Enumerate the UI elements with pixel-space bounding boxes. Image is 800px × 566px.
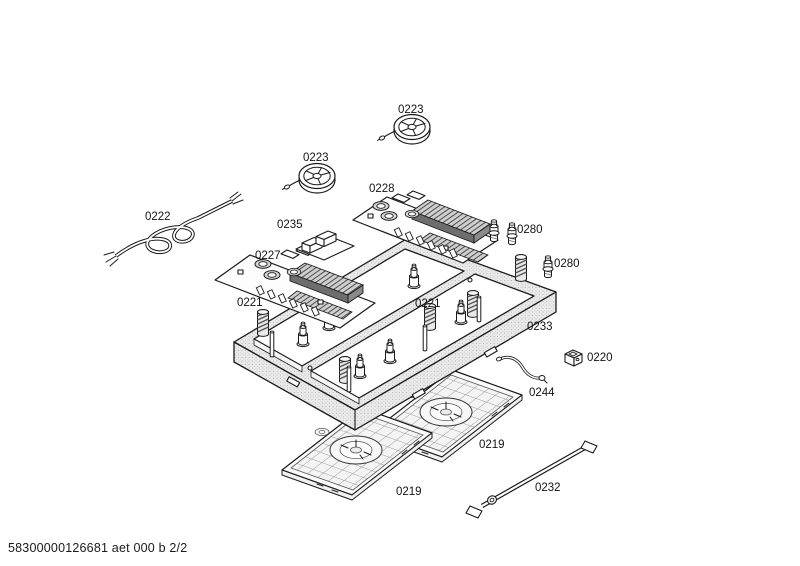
- part-label-board-right: 0228: [369, 183, 395, 195]
- part-label-fan-left: 0223: [303, 152, 329, 164]
- part-label-module: 0235: [277, 219, 303, 231]
- cooling-fan-upper: [378, 115, 431, 145]
- support-rod: [466, 441, 597, 518]
- part-label-tray-left: 0219: [396, 486, 422, 498]
- part-label-wire: 0244: [529, 387, 555, 399]
- exploded-view-drawing: 0223 0223 0228 0222 0235 0227 0280 0280 …: [0, 0, 800, 566]
- part-label-fan-upper: 0223: [398, 104, 424, 116]
- part-label-cable: 0222: [145, 211, 171, 223]
- filter-module: [296, 231, 354, 260]
- part-label-rod: 0232: [535, 482, 561, 494]
- mains-cable: [104, 192, 243, 266]
- jumper-wire: [496, 356, 547, 383]
- connector-block: [565, 350, 582, 366]
- service-diagram-page: 0223 0223 0228 0222 0235 0227 0280 0280 …: [0, 0, 800, 566]
- part-label-bolt-a: 0280: [517, 224, 543, 236]
- part-label-tray-right: 0219: [479, 439, 505, 451]
- part-label-board-left: 0227: [255, 250, 281, 262]
- cooling-fan-left: [283, 164, 336, 194]
- document-code-footer: 58300000126681 aet 000 b 2/2: [8, 541, 187, 555]
- part-label-bolt-b: 0280: [554, 258, 580, 270]
- part-label-frame: 0233: [527, 321, 553, 333]
- part-label-spring-left: 0221: [237, 297, 263, 309]
- part-label-connector: 0220: [587, 352, 613, 364]
- part-label-spring-right: 0221: [415, 298, 441, 310]
- power-board-left: [215, 247, 375, 328]
